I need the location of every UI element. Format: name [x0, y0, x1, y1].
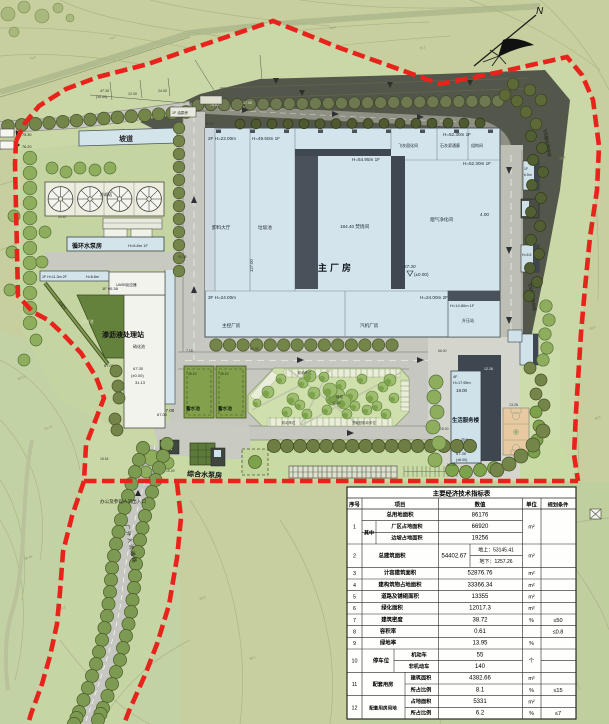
svg-text:建筑面积: 建筑面积 — [411, 674, 433, 682]
svg-text:15.49: 15.49 — [166, 469, 175, 473]
svg-text:13355: 13355 — [472, 594, 489, 600]
svg-text:11: 11 — [352, 682, 358, 688]
svg-text:N: N — [536, 6, 544, 17]
svg-text:38.72: 38.72 — [472, 617, 488, 623]
svg-text:H=49.50m 1F: H=49.50m 1F — [252, 136, 280, 141]
svg-text:飞灰固化间: 飞灰固化间 — [398, 142, 418, 148]
svg-text:烟气净化间: 烟气净化间 — [430, 216, 453, 223]
svg-text:4382.66: 4382.66 — [469, 676, 491, 682]
svg-text:67.30: 67.30 — [133, 366, 144, 371]
svg-text:1F: 1F — [524, 167, 528, 171]
svg-text:6.5m: 6.5m — [524, 173, 532, 177]
svg-text:33366.34: 33366.34 — [467, 582, 493, 588]
svg-text:m²: m² — [528, 554, 534, 560]
svg-text:37.00: 37.00 — [243, 101, 252, 105]
svg-text:m²: m² — [528, 583, 534, 589]
svg-text:≤7: ≤7 — [555, 711, 561, 717]
svg-text:82.00: 82.00 — [250, 347, 259, 351]
svg-text:所占比例: 所占比例 — [411, 685, 432, 693]
svg-text:52876.76: 52876.76 — [467, 571, 493, 577]
svg-text:5331: 5331 — [473, 699, 487, 705]
svg-text:1F H=11.3m 2F: 1F H=11.3m 2F — [42, 275, 68, 279]
svg-text:19.00: 19.00 — [456, 388, 468, 393]
svg-text:3F H=24.00m: 3F H=24.00m — [208, 295, 236, 300]
svg-text:≤50: ≤50 — [553, 618, 562, 624]
svg-text:1F 90.38: 1F 90.38 — [102, 286, 119, 291]
svg-text:机动车位: 机动车位 — [298, 370, 312, 375]
svg-text:H=14.80m 1F: H=14.80m 1F — [450, 303, 475, 308]
svg-text:13.26: 13.26 — [509, 403, 518, 407]
svg-text:H=6.8m 1F: H=6.8m 1F — [128, 243, 148, 248]
svg-text:31.13: 31.13 — [135, 380, 146, 385]
svg-text:生活服务楼: 生活服务楼 — [452, 416, 480, 424]
svg-text:75.30: 75.30 — [22, 133, 32, 137]
svg-text:10: 10 — [352, 659, 358, 665]
svg-text:19256: 19256 — [472, 536, 489, 542]
svg-text:其中: 其中 — [364, 529, 374, 536]
svg-text:m²: m² — [528, 525, 534, 531]
svg-text:13.95: 13.95 — [472, 641, 488, 647]
svg-text:36.87: 36.87 — [205, 122, 214, 126]
svg-text:道路及铺砌面积: 道路及铺砌面积 — [381, 592, 419, 600]
svg-text:1F 油泵房: 1F 油泵房 — [172, 110, 188, 115]
svg-text:m²: m² — [528, 571, 534, 577]
svg-text:1: 1 — [353, 525, 356, 531]
svg-text:m²: m² — [528, 676, 534, 682]
svg-text:地上：53145.41: 地上：53145.41 — [478, 546, 514, 553]
svg-text:绿地率: 绿地率 — [380, 639, 397, 647]
svg-text:单位: 单位 — [526, 501, 537, 509]
svg-text:7.18: 7.18 — [186, 349, 193, 353]
svg-text:序号: 序号 — [348, 501, 360, 509]
svg-text:(±0.00): (±0.00) — [96, 95, 107, 99]
svg-text:坡道: 坡道 — [119, 134, 133, 143]
svg-text:规划条件: 规划条件 — [548, 501, 570, 509]
svg-text:67.30: 67.30 — [404, 264, 416, 269]
svg-text:主要经济技术指标表: 主要经济技术指标表 — [433, 489, 491, 498]
svg-text:127.00: 127.00 — [249, 259, 254, 272]
svg-text:12: 12 — [352, 705, 358, 711]
svg-text:H=54.95m 1F: H=54.95m 1F — [352, 157, 380, 162]
svg-text:升压站: 升压站 — [462, 317, 474, 323]
svg-text:4F: 4F — [453, 375, 458, 379]
svg-text:7: 7 — [353, 618, 356, 624]
svg-text:12017.3: 12017.3 — [469, 606, 491, 612]
svg-text:%: % — [529, 711, 534, 717]
svg-text:蓄水池: 蓄水池 — [186, 405, 200, 412]
svg-text:47.00: 47.00 — [332, 401, 341, 405]
svg-text:26.10: 26.10 — [220, 372, 229, 376]
svg-text:18.00: 18.00 — [440, 427, 449, 431]
svg-text:边坡占地面积: 边坡占地面积 — [390, 534, 423, 542]
svg-text:140: 140 — [475, 664, 486, 670]
svg-text:%: % — [529, 641, 534, 647]
svg-text:67.00: 67.00 — [157, 412, 168, 417]
svg-text:建筑密度: 建筑密度 — [380, 615, 403, 623]
svg-text:绿化面积: 绿化面积 — [381, 604, 403, 612]
svg-text:组构间: 组构间 — [471, 142, 483, 148]
svg-text:机动车: 机动车 — [411, 650, 427, 658]
svg-text:UASB反应器: UASB反应器 — [116, 282, 137, 287]
svg-text:6.2: 6.2 — [476, 711, 485, 717]
svg-text:循环水泵房: 循环水泵房 — [72, 242, 102, 250]
svg-text:所占比例: 所占比例 — [411, 709, 432, 717]
svg-text:建构筑物占地面积: 建构筑物占地面积 — [377, 580, 422, 588]
svg-text:12.20: 12.20 — [447, 463, 456, 467]
svg-text:垃圾池: 垃圾池 — [258, 224, 272, 231]
svg-text:55: 55 — [477, 652, 484, 658]
svg-text:4: 4 — [353, 583, 356, 589]
svg-text:主厂房: 主厂房 — [318, 262, 354, 273]
svg-text:配套用房用地: 配套用房用地 — [369, 704, 397, 711]
svg-text:配套用房: 配套用房 — [373, 680, 394, 688]
svg-text:66.00: 66.00 — [438, 349, 447, 353]
svg-text:卸料大厅: 卸料大厅 — [212, 224, 231, 231]
svg-text:项目: 项目 — [395, 501, 406, 509]
svg-text:24.00: 24.00 — [158, 89, 167, 93]
svg-text:H=6.5: H=6.5 — [522, 253, 531, 257]
svg-text:54402.67: 54402.67 — [441, 554, 467, 560]
svg-text:%: % — [529, 688, 534, 694]
svg-text:≤0.8: ≤0.8 — [553, 630, 564, 636]
svg-text:停车位: 停车位 — [373, 657, 390, 665]
svg-text:86176: 86176 — [472, 512, 489, 518]
svg-text:8.1: 8.1 — [476, 687, 485, 693]
svg-text:机动车位: 机动车位 — [282, 420, 296, 425]
svg-text:数值: 数值 — [475, 501, 486, 509]
svg-text:(±6.00): (±6.00) — [456, 458, 467, 462]
svg-text:容积率: 容积率 — [379, 627, 397, 635]
svg-text:地下：1257.26: 地下：1257.26 — [479, 558, 512, 565]
svg-text:占地面积: 占地面积 — [411, 697, 433, 705]
svg-text:5: 5 — [353, 595, 356, 601]
svg-text:12.00: 12.00 — [128, 92, 137, 96]
svg-text:非机动车: 非机动车 — [409, 662, 430, 670]
svg-text:绿地: 绿地 — [336, 394, 343, 399]
svg-text:汽机厂房: 汽机厂房 — [360, 322, 379, 329]
svg-text:总用地面积: 总用地面积 — [387, 510, 415, 518]
svg-text:47.36: 47.36 — [100, 89, 109, 93]
svg-text:35.87: 35.87 — [58, 215, 67, 219]
svg-text:0.61: 0.61 — [474, 629, 486, 635]
svg-text:%: % — [529, 618, 534, 624]
svg-text:76.20: 76.20 — [22, 145, 32, 149]
svg-text:调节池: 调节池 — [82, 319, 94, 324]
svg-text:冷却塔: 冷却塔 — [100, 191, 112, 197]
svg-text:m²: m² — [528, 606, 534, 612]
svg-text:≤15: ≤15 — [553, 688, 562, 694]
svg-text:4.00: 4.00 — [480, 212, 489, 217]
svg-text:主控厂房: 主控厂房 — [222, 322, 241, 329]
svg-text:3: 3 — [353, 571, 356, 577]
svg-text:9: 9 — [353, 641, 356, 647]
svg-text:(±0.00): (±0.00) — [131, 373, 144, 378]
svg-text:计容建筑面积: 计容建筑面积 — [384, 569, 417, 577]
svg-text:H=6.8m: H=6.8m — [86, 275, 99, 279]
svg-text:18.54: 18.54 — [100, 457, 109, 461]
svg-text:厂区占地面积: 厂区占地面积 — [391, 522, 423, 530]
svg-text:8: 8 — [353, 630, 356, 636]
svg-text:办公及参观人流出入口: 办公及参观人流出入口 — [100, 498, 146, 505]
svg-text:充电桩机动车位: 充电桩机动车位 — [352, 420, 376, 425]
svg-text:个: 个 — [529, 658, 535, 665]
svg-text:渗沥液处理站: 渗沥液处理站 — [102, 330, 144, 339]
svg-text:12.26: 12.26 — [484, 367, 493, 371]
svg-text:66920: 66920 — [472, 524, 489, 530]
svg-text:90.38: 90.38 — [178, 255, 187, 259]
svg-text:硝化池: 硝化池 — [133, 343, 145, 349]
svg-text:蓄水池: 蓄水池 — [218, 405, 232, 412]
svg-text:(±0.00): (±0.00) — [414, 272, 429, 277]
svg-text:H=17.95m: H=17.95m — [453, 381, 471, 385]
svg-text:H=24.00m 2F: H=24.00m 2F — [420, 295, 448, 300]
svg-text:m²: m² — [528, 595, 534, 601]
svg-text:m²: m² — [528, 700, 534, 706]
svg-text:总建筑面积: 总建筑面积 — [379, 552, 407, 560]
svg-text:H=52.30m 1F: H=52.30m 1F — [463, 161, 491, 166]
svg-text:26.10: 26.10 — [188, 372, 197, 376]
svg-text:184.40 焚烧间: 184.40 焚烧间 — [340, 223, 370, 230]
svg-text:2F H=22.00m: 2F H=22.00m — [208, 136, 236, 141]
svg-text:石灰浆通廊: 石灰浆通廊 — [440, 142, 460, 148]
svg-text:6: 6 — [353, 606, 356, 612]
svg-text:2: 2 — [353, 554, 356, 560]
